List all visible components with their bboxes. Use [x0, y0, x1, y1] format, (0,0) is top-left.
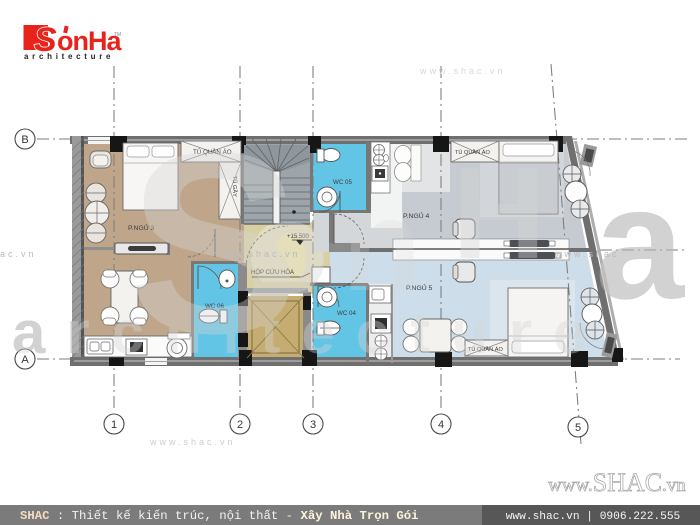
- svg-text:5: 5: [575, 422, 581, 434]
- svg-text:TM: TM: [114, 32, 121, 38]
- svg-text:www.shac.vn: www.shac.vn: [214, 249, 301, 259]
- svg-text:B: B: [21, 134, 28, 146]
- svg-text:www.shac.vn: www.shac.vn: [419, 66, 506, 76]
- svg-text:2: 2: [237, 419, 243, 431]
- svg-text:ac.vn: ac.vn: [0, 249, 37, 259]
- svg-text:www.shac.vn: www.shac.vn: [149, 437, 236, 447]
- svg-text:4: 4: [438, 419, 444, 431]
- svg-text:3: 3: [310, 419, 316, 431]
- svg-text:n: n: [342, 172, 421, 318]
- svg-text:www.shac: www.shac: [554, 249, 620, 259]
- svg-text:architecture: architecture: [12, 299, 607, 366]
- svg-text:www.shac.vn | 0906.222.555: www.shac.vn | 0906.222.555: [506, 511, 681, 523]
- svg-text:architecture: architecture: [24, 52, 114, 61]
- svg-text:1: 1: [111, 419, 117, 431]
- svg-text:a: a: [595, 153, 685, 332]
- svg-text:SHAC : Thiết kế kiến trúc, nội: SHAC : Thiết kế kiến trúc, nội thất - Xâ…: [20, 509, 419, 523]
- svg-text:H: H: [452, 140, 546, 286]
